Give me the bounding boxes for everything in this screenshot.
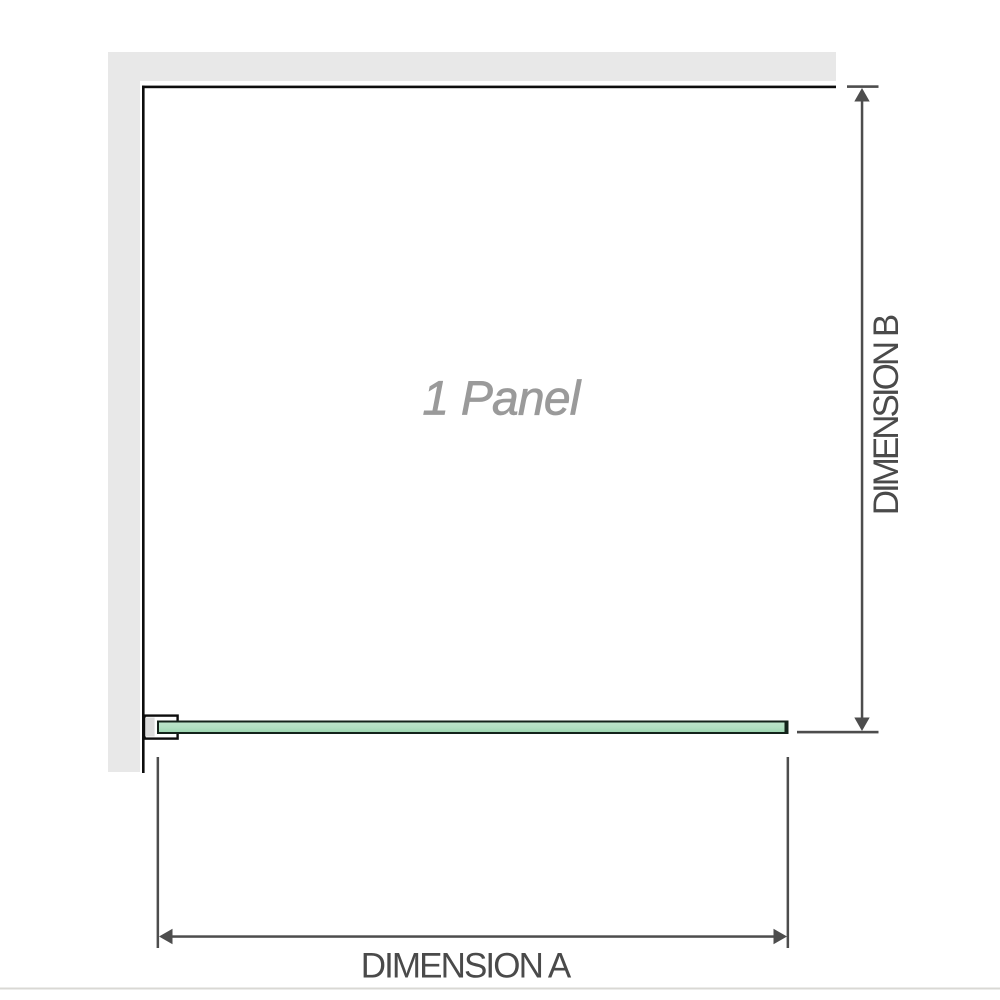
svg-text:DIMENSION A: DIMENSION A <box>361 947 572 986</box>
svg-text:DIMENSION B: DIMENSION B <box>867 315 906 515</box>
svg-text:1 Panel: 1 Panel <box>422 373 581 426</box>
